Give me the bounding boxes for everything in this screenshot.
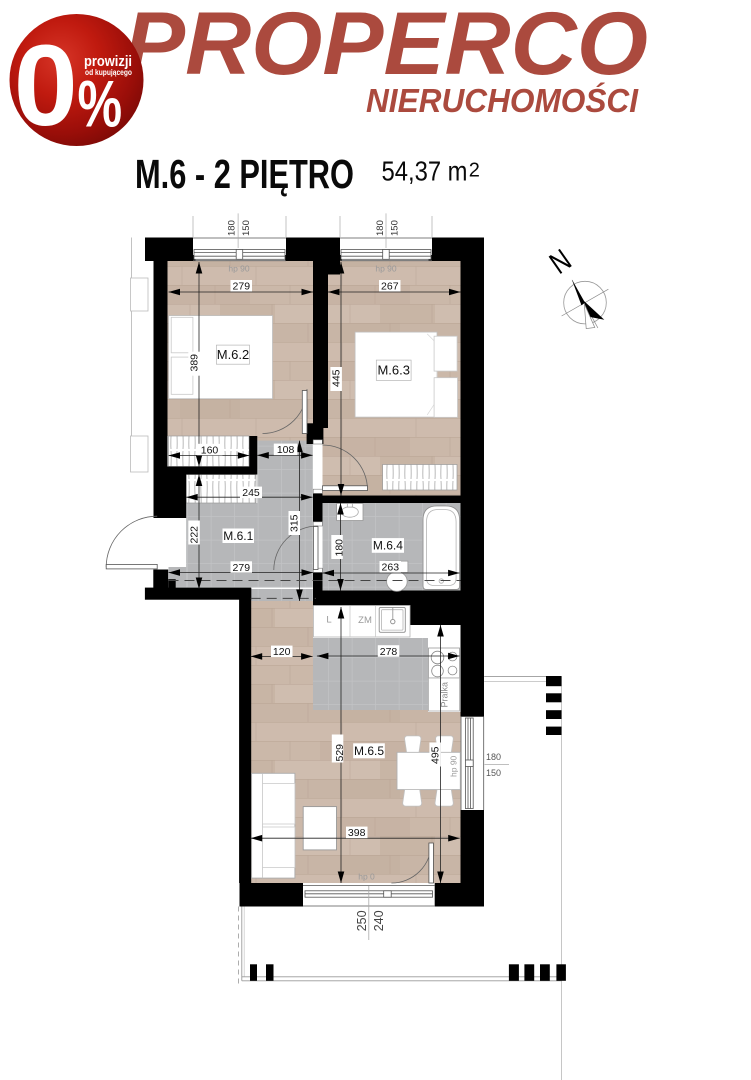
svg-text:240: 240 [372,910,386,931]
svg-text:108: 108 [277,444,295,456]
svg-text:445: 445 [331,369,343,387]
svg-text:%: % [78,68,123,141]
svg-text:389: 389 [189,354,201,372]
svg-text:M.6.5: M.6.5 [354,744,384,758]
svg-text:54,37 m: 54,37 m [382,156,468,187]
svg-text:180: 180 [486,752,501,762]
svg-text:279: 279 [233,281,251,293]
svg-text:278: 278 [380,646,398,658]
svg-text:ZM: ZM [358,615,372,626]
svg-text:hp 90: hp 90 [375,264,397,274]
svg-text:180: 180 [375,220,386,236]
svg-text:250: 250 [355,910,369,931]
svg-text:NIERUCHOMOŚCI: NIERUCHOMOŚCI [366,82,639,120]
svg-text:M.6.2: M.6.2 [217,347,250,362]
svg-text:Pralka: Pralka [440,682,450,708]
svg-text:0: 0 [14,22,78,150]
svg-text:222: 222 [189,526,201,544]
svg-text:hp 0: hp 0 [358,872,375,882]
svg-text:180: 180 [334,539,346,557]
svg-text:315: 315 [289,514,301,532]
svg-text:M.6.3: M.6.3 [377,362,410,377]
svg-text:279: 279 [233,562,251,574]
svg-text:150: 150 [390,220,401,236]
svg-text:495: 495 [430,746,442,764]
svg-text:hp 90: hp 90 [449,755,459,777]
svg-text:180: 180 [227,220,238,236]
svg-text:529: 529 [334,744,346,762]
svg-text:PROPERCO: PROPERCO [124,0,648,93]
svg-text:160: 160 [201,444,219,456]
svg-text:267: 267 [381,281,399,293]
svg-text:hp 90: hp 90 [228,264,250,274]
svg-text:120: 120 [273,646,291,658]
svg-text:245: 245 [242,487,260,499]
svg-text:398: 398 [348,827,366,839]
svg-text:150: 150 [241,220,252,236]
svg-text:M.6 - 2 PIĘTRO: M.6 - 2 PIĘTRO [135,151,354,197]
svg-text:2: 2 [469,159,480,181]
svg-text:M.6.1: M.6.1 [223,529,253,543]
svg-text:od kupującego: od kupującego [85,68,132,77]
svg-text:L: L [326,615,331,626]
svg-text:150: 150 [486,768,501,778]
svg-text:263: 263 [382,562,400,574]
svg-text:M.6.4: M.6.4 [373,539,403,553]
